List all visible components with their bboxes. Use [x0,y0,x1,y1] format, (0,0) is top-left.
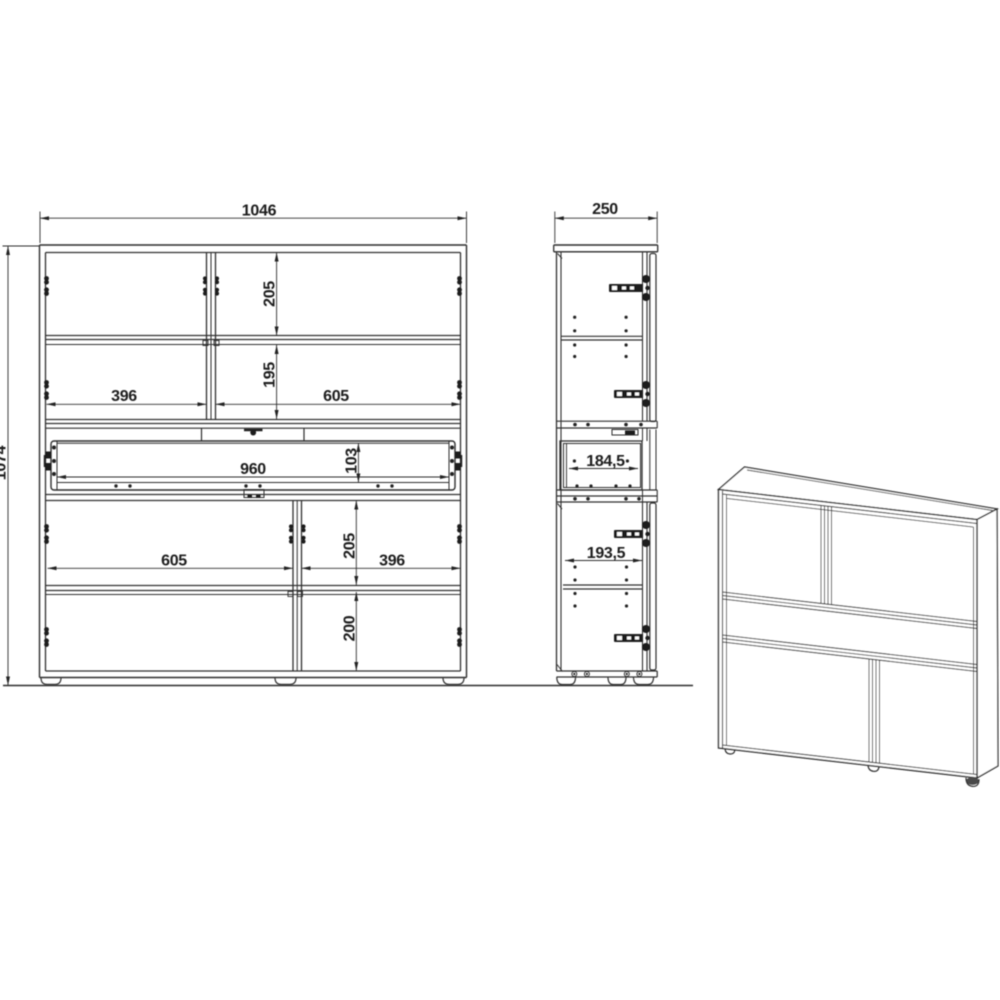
svg-text:1074: 1074 [0,445,10,480]
svg-text:205: 205 [262,281,279,307]
svg-text:103: 103 [343,448,360,474]
svg-text:396: 396 [379,553,405,570]
svg-text:195: 195 [262,362,279,388]
svg-text:205: 205 [341,533,358,559]
svg-text:605: 605 [161,553,187,570]
svg-text:200: 200 [341,615,358,641]
svg-text:960: 960 [240,461,266,478]
svg-text:1046: 1046 [242,203,277,220]
svg-text:184,5: 184,5 [586,453,625,470]
svg-text:250: 250 [592,201,618,218]
svg-text:396: 396 [111,388,137,405]
svg-text:605: 605 [323,388,349,405]
svg-text:193,5: 193,5 [587,545,626,562]
